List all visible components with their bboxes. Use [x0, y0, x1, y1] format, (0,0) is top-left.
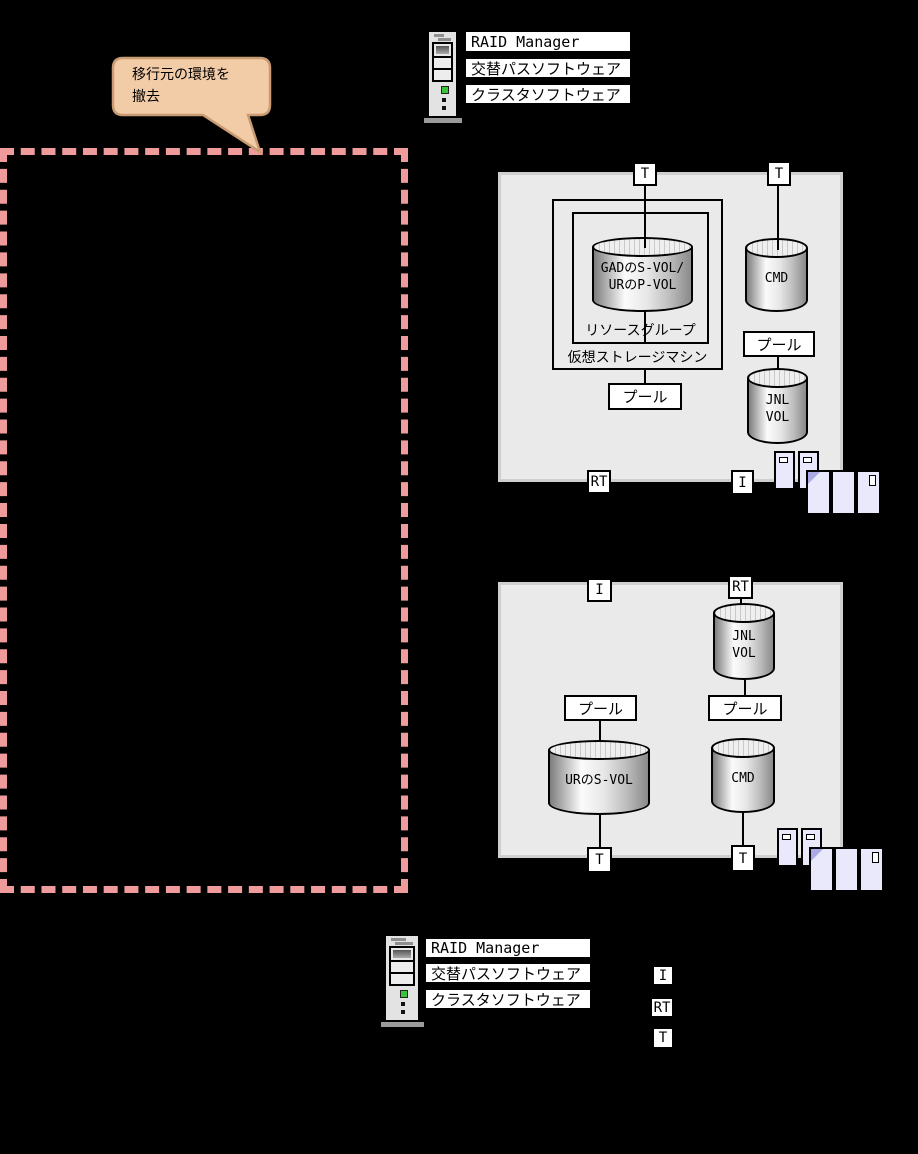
volume-label: CMD [745, 270, 808, 287]
line-pool-to-ur-svol [599, 720, 601, 741]
port-rt-primary: RT [587, 470, 611, 494]
port-target-3: T [587, 847, 612, 873]
removed-environment-dashed-zone [0, 148, 408, 893]
software-label-raid-manager: RAID Manager [424, 937, 592, 959]
line-pool-to-jnl [777, 356, 779, 370]
volume-label: CMD [711, 770, 775, 787]
volume-label: JNL VOL [747, 392, 808, 426]
pool-label-secondary-right: プール [708, 695, 782, 721]
legend-target-port: T [652, 1027, 674, 1049]
line-rt-to-jnl [740, 598, 742, 605]
software-label-multipath: 交替パスソフトウェア [464, 57, 632, 79]
volume-jnl-primary: JNL VOL [747, 368, 808, 444]
software-label-cluster: クラスタソフトウェア [464, 83, 632, 105]
migration-diagram: 移行元の環境を 撤去 RAID Manager 交替パスソフトウェア クラスタソ… [0, 0, 918, 1154]
legend-initiator-port: I [652, 965, 674, 986]
volume-ur-svol: URのS-VOL [548, 740, 650, 815]
callout-text: 移行元の環境を 撤去 [132, 64, 262, 108]
line-t1-to-gad-vol [644, 186, 646, 248]
line-t2-to-cmd [777, 186, 779, 250]
port-target-1: T [633, 162, 657, 186]
pool-label-secondary-left: プール [564, 695, 637, 721]
line-jnl-to-pool [744, 680, 746, 696]
volume-cmd-secondary: CMD [711, 738, 775, 813]
port-target-4: T [731, 845, 755, 872]
resource-group-label: リソースグループ [573, 320, 708, 340]
virtual-storage-machine-label: 仮想ストレージマシン [553, 347, 722, 367]
software-label-multipath: 交替パスソフトウェア [424, 962, 592, 984]
volume-label: JNL VOL [713, 628, 775, 662]
legend-rt-port: RT [650, 997, 674, 1018]
port-target-2: T [767, 161, 791, 186]
pool-label-primary-right: プール [743, 331, 815, 357]
storage-array-icon [777, 828, 885, 894]
volume-label: GADのS-VOL/ URのP-VOL [592, 260, 693, 294]
port-initiator-primary: I [731, 470, 754, 495]
line-cmd-to-t [742, 813, 744, 846]
line-ur-svol-to-t [599, 815, 601, 848]
server-tower-icon [384, 934, 420, 1022]
storage-array-icon [774, 451, 882, 517]
host-server-top [427, 30, 458, 124]
storage-system-secondary [498, 582, 843, 858]
port-initiator-secondary: I [587, 578, 612, 602]
host-server-bottom [384, 934, 420, 1029]
pool-label-primary-left: プール [608, 383, 682, 410]
server-led-icon [400, 990, 408, 998]
volume-gad-svol-ur-pvol: GADのS-VOL/ URのP-VOL [592, 237, 693, 312]
line-vsm-to-pool [644, 370, 646, 383]
port-rt-secondary: RT [728, 575, 753, 599]
software-label-raid-manager: RAID Manager [464, 30, 632, 53]
server-led-icon [441, 86, 449, 94]
server-tower-icon [427, 30, 458, 118]
software-label-cluster: クラスタソフトウェア [424, 988, 592, 1010]
volume-jnl-secondary: JNL VOL [713, 603, 775, 680]
line-gad-vol-down [644, 310, 646, 344]
volume-label: URのS-VOL [548, 772, 650, 789]
